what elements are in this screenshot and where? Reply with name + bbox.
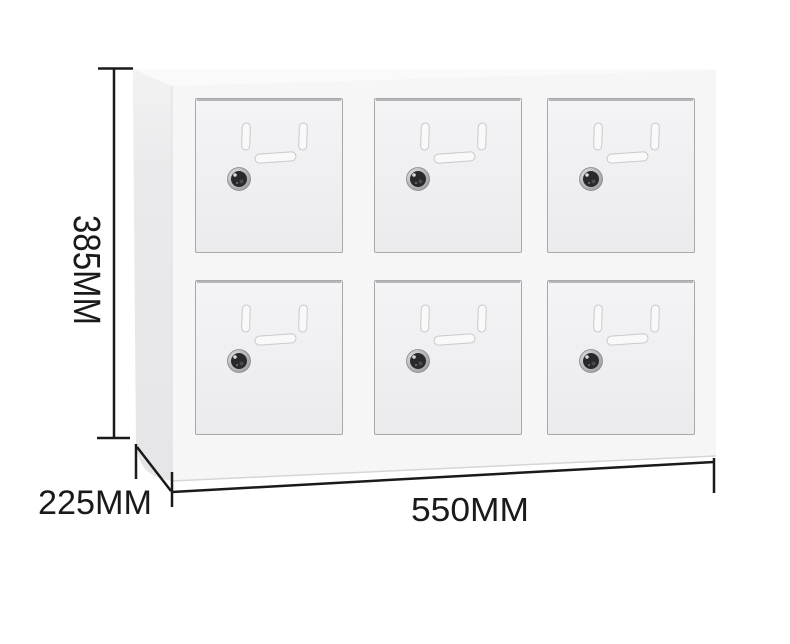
- locker-door-row1-col3: [548, 99, 695, 253]
- width-label: 550MM: [411, 491, 529, 528]
- cabinet-side-panel: [133, 69, 172, 481]
- locker-door-row2-col2: [375, 281, 522, 435]
- locker-dimension-drawing: 385MM 225MM 550MM: [0, 0, 790, 644]
- locker-door-row2-col3: [548, 281, 695, 435]
- locker-door-row1-col1: [196, 99, 343, 253]
- locker-cabinet: [133, 69, 716, 481]
- locker-door-row1-col2: [375, 99, 522, 253]
- locker-door-row2-col1: [196, 281, 343, 435]
- depth-label: 225MM: [38, 484, 152, 522]
- product-dimension-image: 385MM 225MM 550MM: [0, 0, 790, 644]
- height-label: 385MM: [65, 215, 107, 325]
